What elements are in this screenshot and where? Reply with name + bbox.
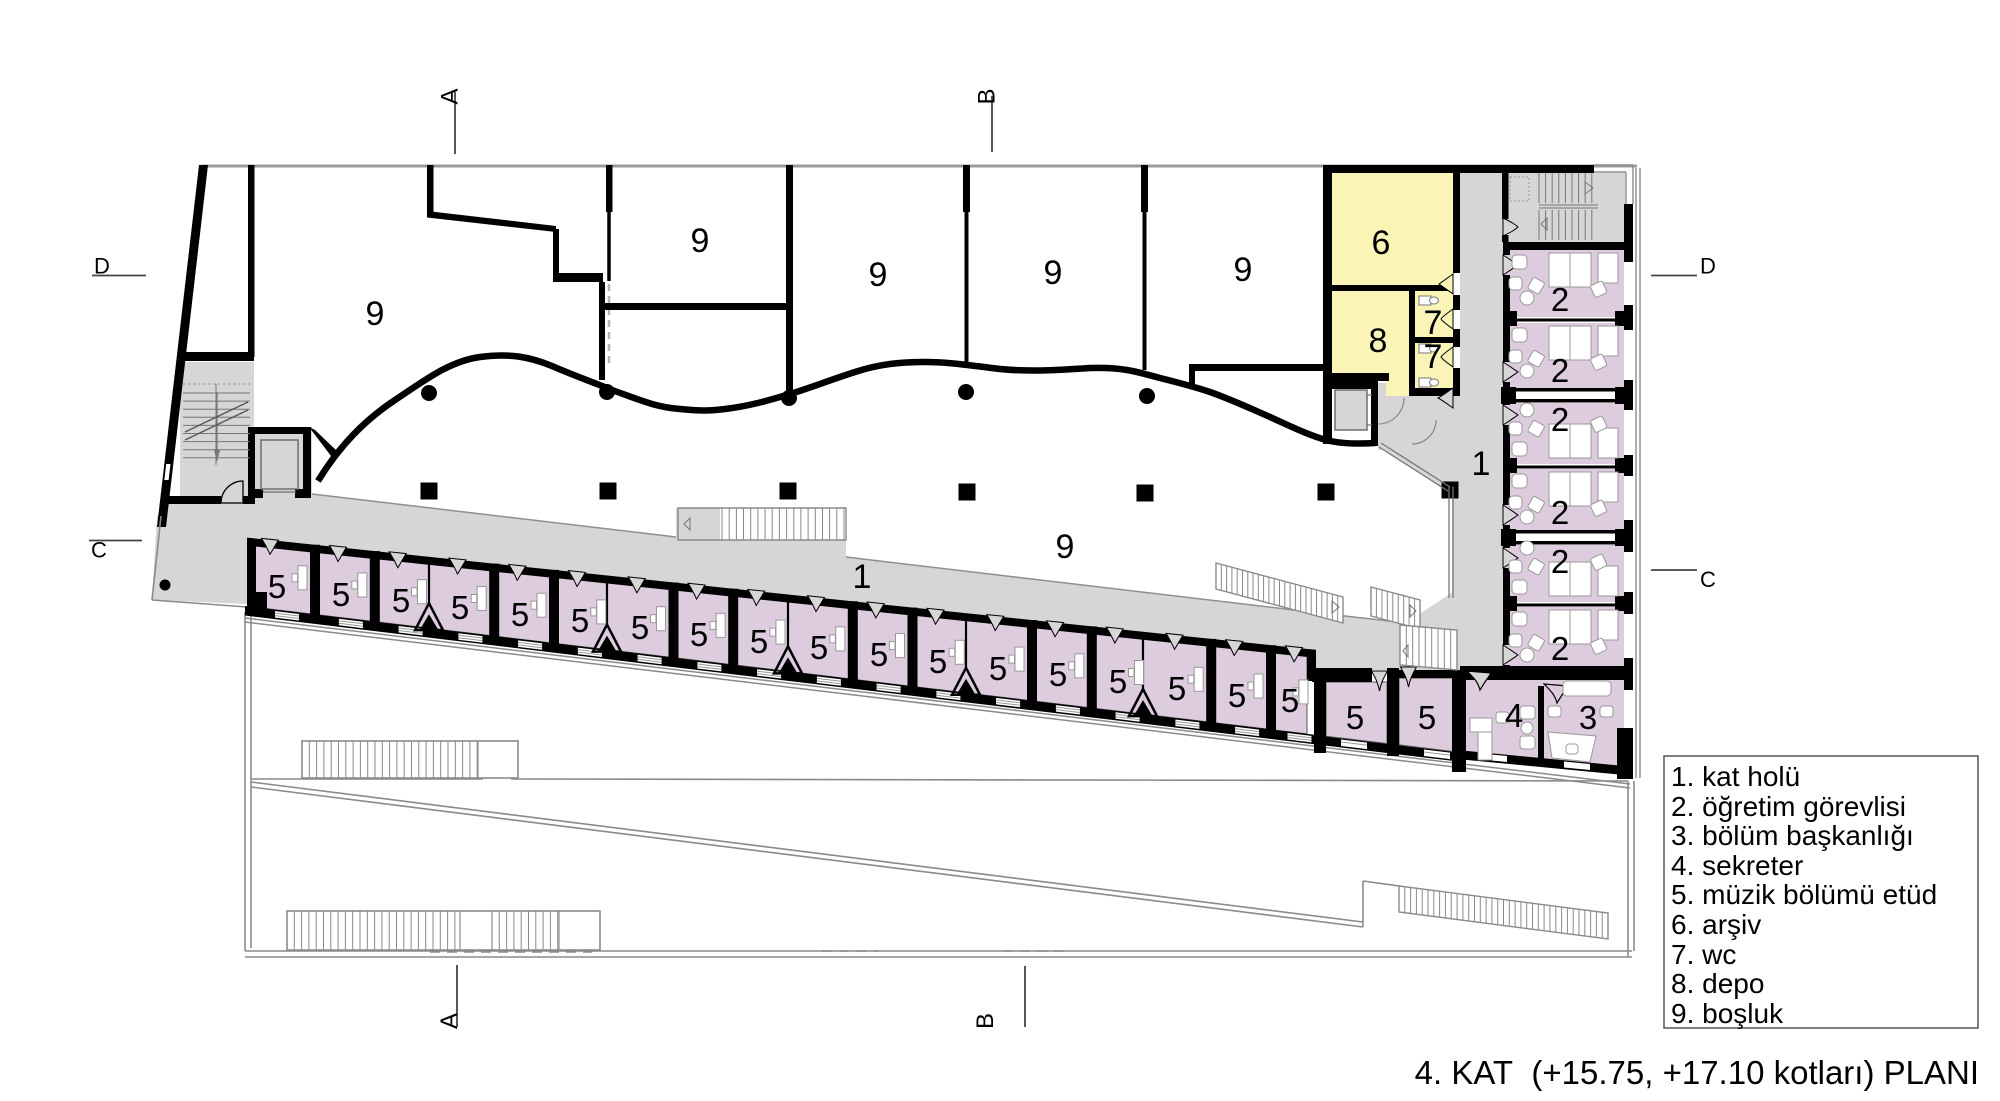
svg-text:C: C (1700, 567, 1716, 592)
svg-text:3: 3 (1579, 699, 1597, 736)
svg-text:5: 5 (1418, 699, 1436, 736)
svg-text:5: 5 (750, 623, 768, 660)
svg-text:2: 2 (1551, 630, 1569, 667)
svg-text:9: 9 (691, 222, 710, 260)
svg-text:D: D (1700, 254, 1716, 279)
svg-text:7. wc: 7. wc (1671, 939, 1736, 970)
svg-text:5: 5 (1109, 663, 1127, 700)
svg-text:5: 5 (1168, 670, 1186, 707)
svg-text:1: 1 (1472, 445, 1491, 483)
svg-text:5. müzik bölümü etüd: 5. müzik bölümü etüd (1671, 879, 1937, 910)
svg-text:1. kat holü: 1. kat holü (1671, 761, 1800, 792)
svg-text:5: 5 (571, 602, 589, 639)
svg-text:2: 2 (1551, 401, 1569, 438)
svg-text:4: 4 (1505, 697, 1523, 734)
svg-text:7: 7 (1424, 338, 1443, 376)
svg-text:7: 7 (1424, 304, 1443, 342)
svg-text:A: A (436, 1013, 463, 1029)
svg-text:5: 5 (511, 596, 529, 633)
svg-text:5: 5 (870, 636, 888, 673)
svg-text:9. boşluk: 9. boşluk (1671, 998, 1784, 1029)
svg-text:1: 1 (853, 558, 872, 596)
svg-text:9: 9 (869, 256, 888, 294)
svg-text:5: 5 (451, 589, 469, 626)
svg-text:9: 9 (366, 295, 385, 333)
svg-text:5: 5 (1049, 656, 1067, 693)
svg-text:9: 9 (1234, 251, 1253, 289)
svg-text:4. sekreter: 4. sekreter (1671, 850, 1803, 881)
svg-text:5: 5 (268, 568, 286, 605)
svg-text:5: 5 (332, 576, 350, 613)
svg-text:5: 5 (989, 650, 1007, 687)
svg-text:B: B (972, 1013, 999, 1029)
svg-text:8: 8 (1369, 322, 1388, 360)
svg-text:B: B (974, 88, 1001, 104)
svg-text:9: 9 (1044, 254, 1063, 292)
svg-text:A: A (437, 88, 464, 104)
svg-text:2. öğretim görevlisi: 2. öğretim görevlisi (1671, 791, 1906, 822)
svg-text:5: 5 (392, 582, 410, 619)
svg-text:9: 9 (1056, 528, 1075, 566)
svg-text:2: 2 (1551, 543, 1569, 580)
svg-text:6. arşiv: 6. arşiv (1671, 909, 1761, 940)
svg-text:2: 2 (1551, 352, 1569, 389)
svg-text:2: 2 (1551, 281, 1569, 318)
svg-text:5: 5 (810, 629, 828, 666)
svg-text:5: 5 (690, 616, 708, 653)
svg-text:5: 5 (929, 643, 947, 680)
svg-text:4. KAT (+15.75, +17.10 kotlar: 4. KAT (+15.75, +17.10 kotları) PLANI (1415, 1054, 1979, 1091)
svg-text:2: 2 (1551, 494, 1569, 531)
svg-text:5: 5 (1281, 682, 1299, 719)
svg-text:5: 5 (631, 609, 649, 646)
svg-text:8. depo: 8. depo (1671, 968, 1764, 999)
svg-text:5: 5 (1346, 699, 1364, 736)
svg-text:6: 6 (1372, 224, 1391, 262)
svg-text:3. bölüm başkanlığı: 3. bölüm başkanlığı (1671, 820, 1914, 851)
svg-text:5: 5 (1228, 677, 1246, 714)
